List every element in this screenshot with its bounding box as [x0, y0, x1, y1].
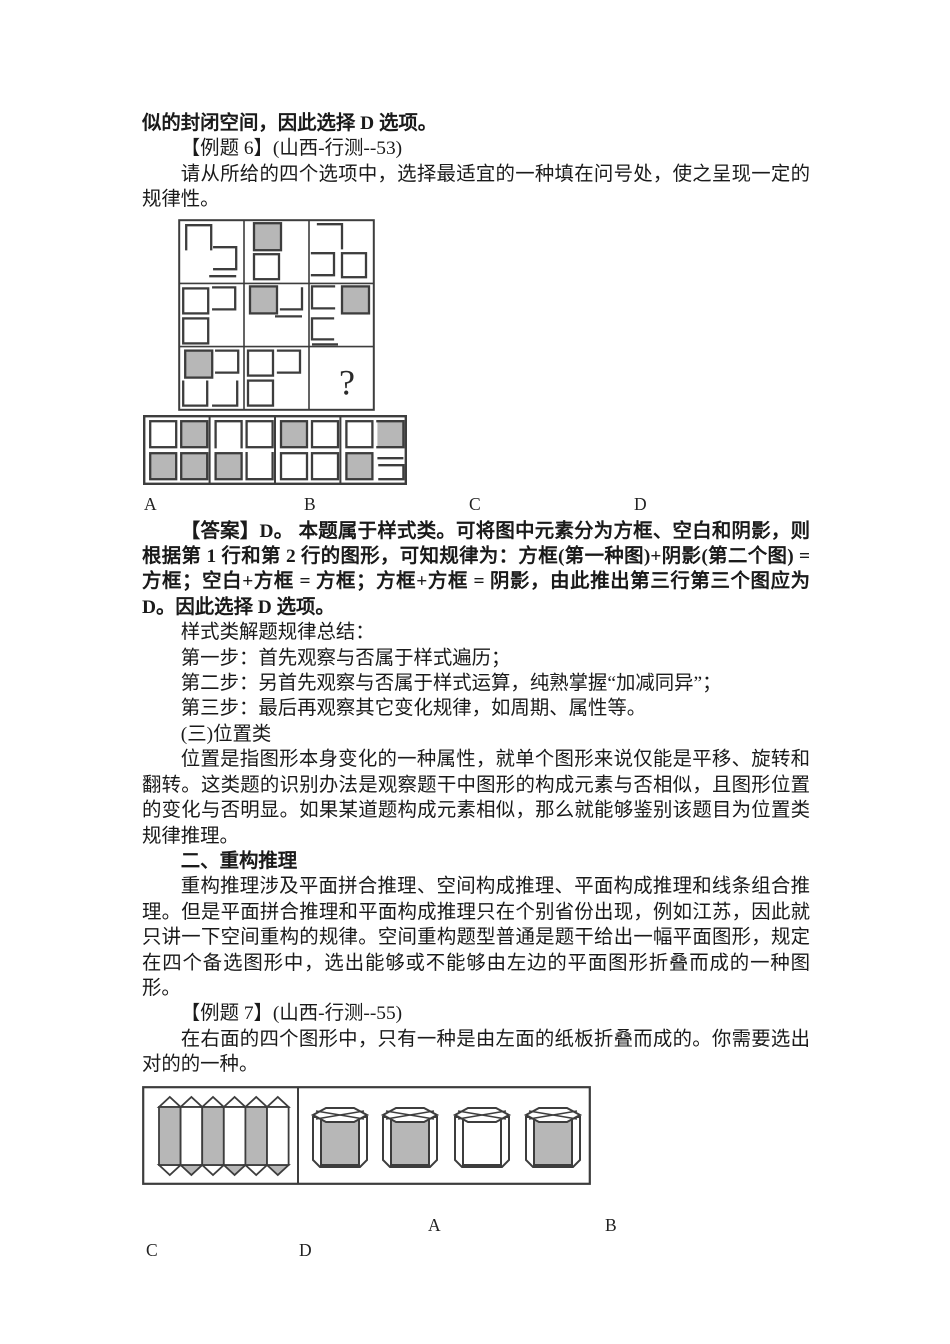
- example6-option-label-a: A: [144, 494, 157, 515]
- example7-option-label-c: C: [146, 1240, 158, 1261]
- restructure-section-heading: 二、重构推理: [142, 849, 810, 874]
- summary-step-1: 第一步：首先观察与否属于样式遍历；: [142, 646, 810, 671]
- svg-text:?: ?: [339, 362, 355, 402]
- position-section-body: 位置是指图形本身变化的一种属性，就单个图形来说仅能是平移、旋转和翻转。这类题的识…: [142, 747, 810, 849]
- example6-option-labels: A B C D: [142, 494, 810, 519]
- summary-heading: 样式类解题规律总结：: [142, 620, 810, 645]
- example7-prompt: 在右面的四个图形中，只有一种是由左面的纸板折叠而成的。你需要选出对的的一种。: [142, 1027, 810, 1078]
- example7-title: 【例题 7】(山西-行测--55): [142, 1001, 810, 1026]
- example6-option-label-d: D: [634, 494, 647, 515]
- example7-option-label-a: A: [428, 1215, 441, 1236]
- example6-answer: 【答案】D。 本题属于样式类。可将图中元素分为方框、空白和阴影，则根据第 1 行…: [142, 519, 810, 621]
- example6-option-label-b: B: [304, 494, 316, 515]
- summary-step-3: 第三步：最后再观察其它变化规律，如周期、属性等。: [142, 696, 810, 721]
- example6-grid-figure: ?: [178, 219, 375, 411]
- position-section-heading: (三)位置类: [142, 722, 810, 747]
- example6-prompt: 请从所给的四个选项中，选择最适宜的一种填在问号处，使之呈现一定的规律性。: [142, 162, 810, 213]
- document-page: 似的封闭空间，因此选择 D 选项。 【例题 6】(山西-行测--53) 请从所给…: [0, 0, 950, 1344]
- context-line: 似的封闭空间，因此选择 D 选项。: [142, 111, 810, 136]
- example7-option-labels-row1: A B: [142, 1215, 810, 1240]
- example7-option-label-b: B: [605, 1215, 617, 1236]
- restructure-section-body: 重构推理涉及平面拼合推理、空间构成推理、平面构成推理和线条组合推理。但是平面拼合…: [142, 874, 810, 1001]
- example7-option-labels-row2: C D: [142, 1240, 810, 1265]
- example7-option-label-d: D: [299, 1240, 312, 1261]
- example6-options-figure: [143, 415, 407, 485]
- example7-figure: [142, 1086, 592, 1186]
- summary-step-2: 第二步：另首先观察与否属于样式运算，纯熟掌握“加减同异”；: [142, 671, 810, 696]
- example6-title: 【例题 6】(山西-行测--53): [142, 136, 810, 161]
- example6-option-label-c: C: [469, 494, 481, 515]
